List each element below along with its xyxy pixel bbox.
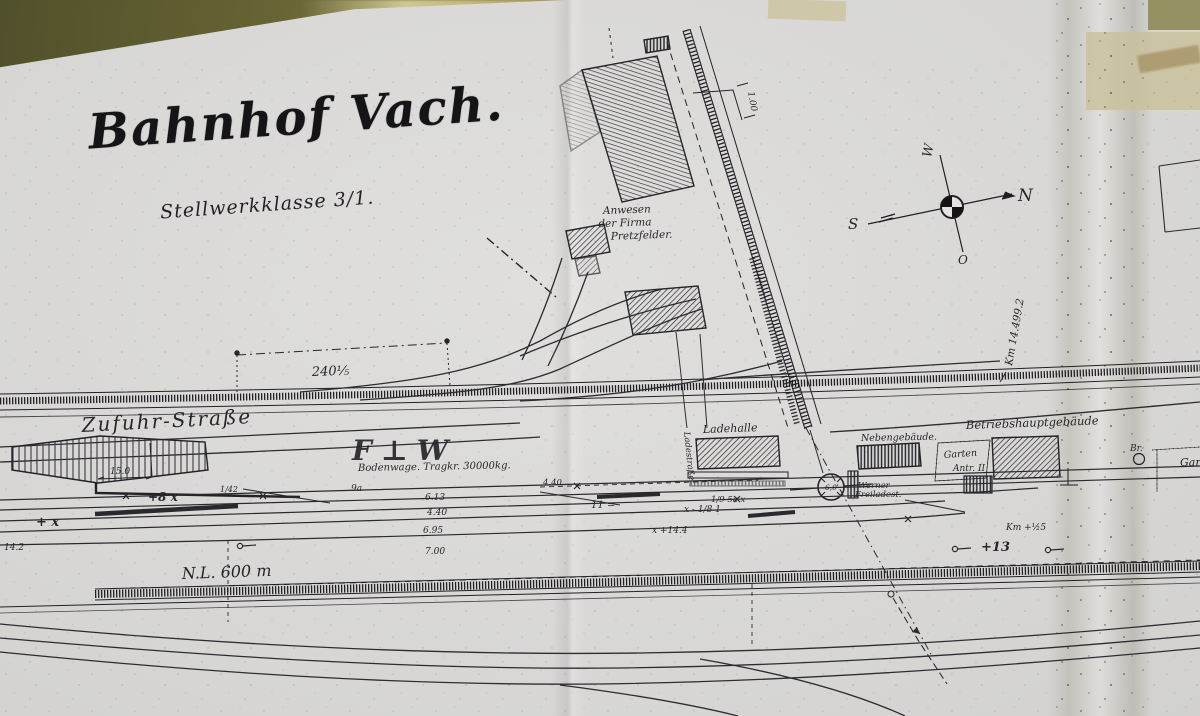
well-label: Br.	[1129, 444, 1143, 454]
aux-building-rect	[857, 443, 921, 469]
measure-195a: 1/9 5a x	[711, 495, 746, 505]
compass-o-label: O	[958, 253, 968, 267]
measure-plus8: +8 x	[148, 490, 179, 504]
boundary-dash	[609, 28, 613, 58]
loading-hall-label: Ladehalle	[702, 421, 759, 436]
measure-700: 7.00	[425, 547, 445, 557]
dim240-dot-left	[235, 351, 239, 355]
measure-9a: 9a	[351, 484, 362, 494]
compass-n-label: N	[1017, 186, 1034, 206]
ramp-dim-label: 15.0	[110, 467, 130, 477]
measure-plusx: + x	[36, 515, 59, 530]
aux-building-label: Nebengebäude.	[860, 432, 937, 444]
measure-1-42: 1/42	[220, 485, 238, 494]
compass-s-label: S	[848, 215, 858, 233]
measure-695: 6.95	[423, 526, 443, 536]
measure-km-half: Km +½5	[1005, 522, 1046, 533]
measure-11: 11 =	[591, 500, 615, 511]
measure-plus13: +13	[981, 540, 1010, 555]
measure-613: 6.13	[425, 493, 445, 503]
measure-x18: x - 1/8 1	[684, 505, 721, 515]
usable-length-label: N.L. 600 m	[180, 561, 271, 583]
measure-440a: 4.40	[426, 508, 447, 518]
dim240-label: 240⅕	[311, 364, 350, 380]
garden-label-1: Garten	[943, 448, 977, 461]
dim240-dot-right	[445, 339, 449, 343]
measure-142: 14.2	[4, 543, 24, 553]
small-building-c	[625, 286, 706, 335]
small-shed-top	[644, 36, 670, 53]
loading-hall-building	[696, 436, 780, 469]
measure-440b: 4.40	[542, 478, 563, 488]
scanned-track-plan: 1.00 Anwesen der Firma Pretzfelder. N S …	[0, 0, 1200, 716]
measure-144: x +14.4	[652, 526, 688, 536]
